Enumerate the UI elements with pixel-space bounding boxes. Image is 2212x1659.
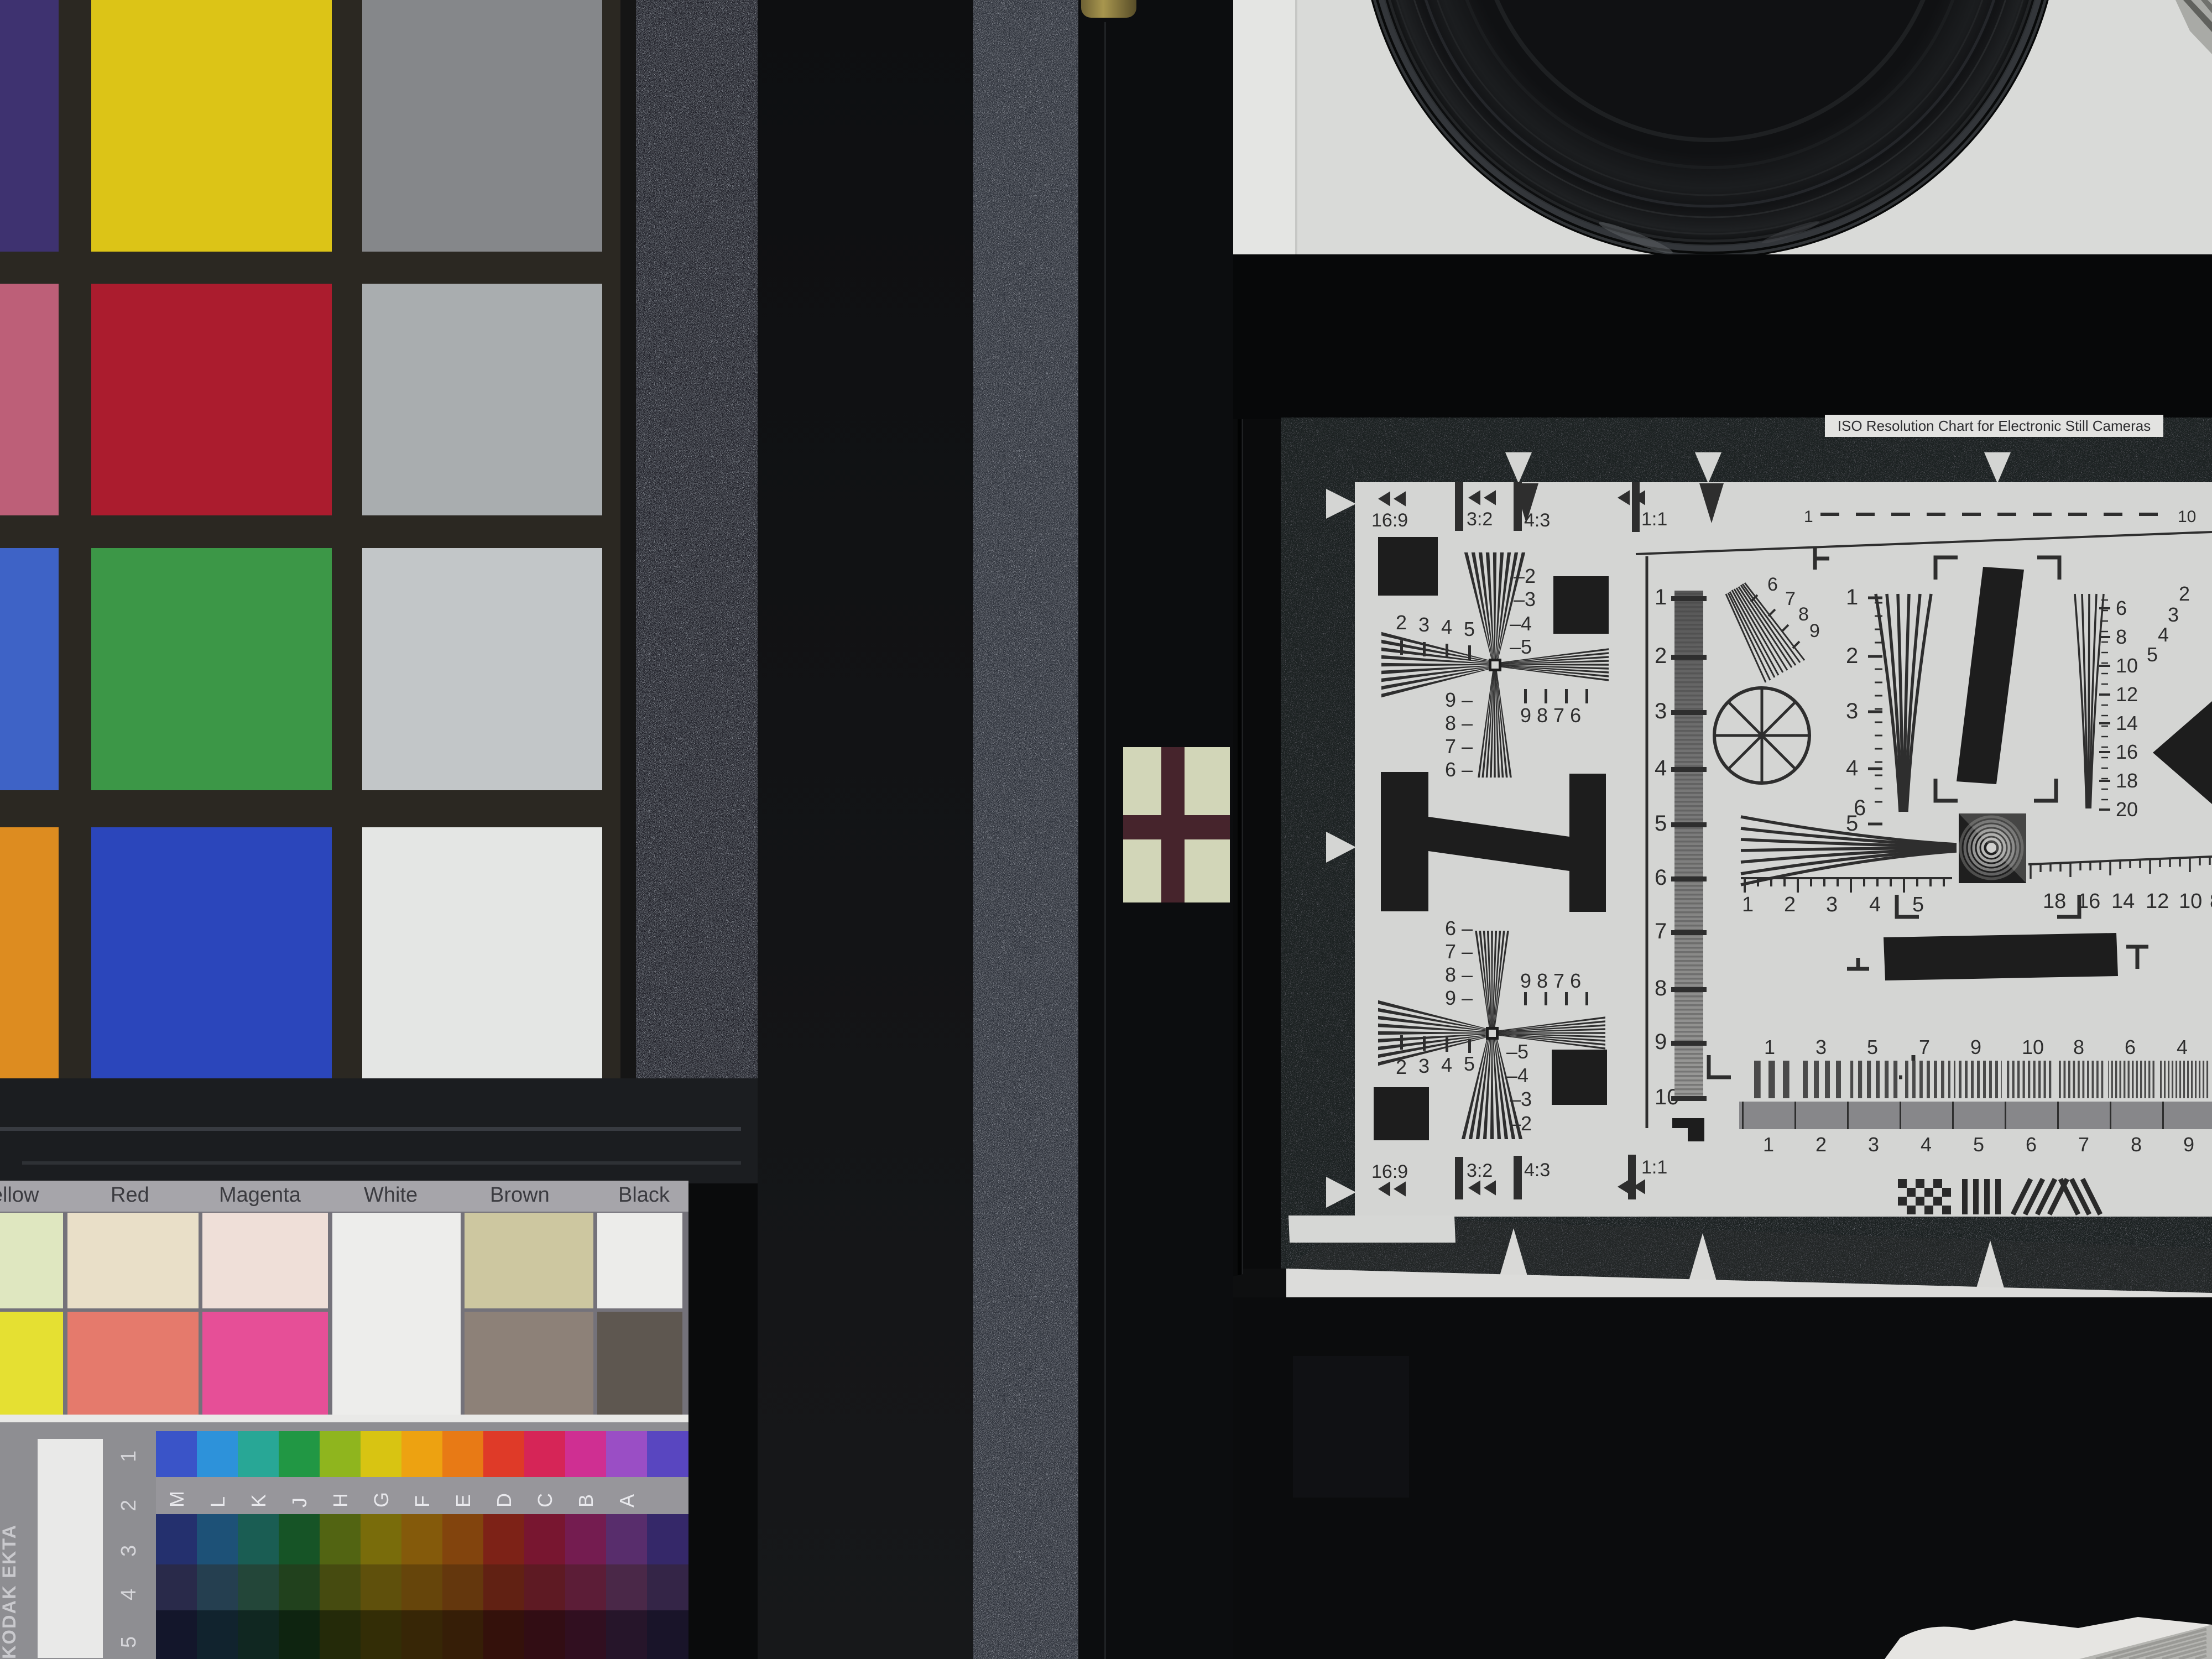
- svg-text:8: 8: [2116, 625, 2127, 648]
- svg-text:8: 8: [1655, 976, 1667, 1000]
- svg-text:1:1: 1:1: [1641, 509, 1667, 530]
- svg-text:6: 6: [1767, 574, 1778, 595]
- svg-text:2: 2: [1815, 1133, 1827, 1156]
- svg-text:5: 5: [1655, 811, 1667, 836]
- svg-text:1: 1: [1764, 1036, 1775, 1058]
- svg-text:ISO Resolution Chart for Elect: ISO Resolution Chart for Electronic Stil…: [1838, 418, 2151, 434]
- svg-text:1: 1: [1763, 1133, 1774, 1156]
- svg-text:8: 8: [1798, 604, 1809, 625]
- svg-text:6: 6: [2026, 1133, 2037, 1156]
- svg-text:2: 2: [2179, 582, 2190, 605]
- svg-text:18: 18: [2116, 769, 2138, 792]
- svg-text:1: 1: [1804, 508, 1813, 526]
- svg-text:3: 3: [1826, 893, 1838, 916]
- svg-text:7: 7: [1919, 1036, 1930, 1058]
- svg-text:7: 7: [1655, 919, 1667, 943]
- svg-text:12: 12: [2116, 683, 2138, 706]
- svg-text:9 –: 9 –: [1445, 987, 1473, 1009]
- svg-text:1:1: 1:1: [1641, 1157, 1667, 1178]
- svg-text:16:9: 16:9: [1371, 1161, 1408, 1182]
- svg-text:–5: –5: [1506, 1040, 1528, 1063]
- svg-text:8: 8: [2210, 890, 2212, 913]
- svg-text:10: 10: [2022, 1036, 2044, 1058]
- svg-text:7 –: 7 –: [1445, 940, 1473, 963]
- svg-text:4:3: 4:3: [1524, 1160, 1550, 1181]
- svg-text:–3: –3: [1510, 1088, 1532, 1110]
- svg-text:5: 5: [1867, 1036, 1878, 1058]
- svg-text:16: 16: [2116, 740, 2138, 763]
- svg-text:8 –: 8 –: [1445, 963, 1473, 986]
- svg-text:20: 20: [2116, 798, 2138, 821]
- svg-text:3: 3: [1815, 1036, 1827, 1058]
- svg-text:4: 4: [1921, 1133, 1932, 1156]
- svg-text:2: 2: [1784, 893, 1796, 916]
- svg-text:6: 6: [2116, 597, 2127, 619]
- svg-text:3: 3: [1655, 699, 1667, 723]
- svg-text:7: 7: [1785, 588, 1796, 609]
- svg-text:4: 4: [2177, 1036, 2188, 1058]
- svg-text:8 –: 8 –: [1445, 712, 1473, 734]
- svg-text:7: 7: [2078, 1133, 2089, 1156]
- svg-text:10: 10: [2179, 890, 2202, 913]
- svg-text:3:2: 3:2: [1467, 509, 1493, 530]
- svg-text:–2: –2: [1510, 1112, 1532, 1135]
- svg-text:4: 4: [2158, 623, 2169, 646]
- svg-text:–3: –3: [1514, 588, 1536, 611]
- svg-text:3: 3: [1868, 1133, 1879, 1156]
- svg-text:3: 3: [1418, 613, 1430, 636]
- svg-text:5: 5: [2147, 643, 2158, 666]
- svg-text:4: 4: [1441, 615, 1452, 638]
- svg-text:4: 4: [1655, 756, 1667, 780]
- svg-text:–5: –5: [1510, 635, 1532, 658]
- svg-text:6: 6: [1655, 865, 1667, 890]
- svg-text:–2: –2: [1514, 565, 1536, 587]
- svg-text:1: 1: [1742, 893, 1754, 916]
- svg-text:5: 5: [1912, 893, 1924, 916]
- svg-text:5: 5: [1464, 1052, 1475, 1075]
- svg-text:9: 9: [1970, 1036, 1981, 1058]
- svg-text:1: 1: [1846, 585, 1858, 609]
- svg-text:14: 14: [2116, 712, 2138, 734]
- svg-text:6: 6: [2125, 1036, 2136, 1058]
- svg-text:9: 9: [1655, 1030, 1667, 1054]
- svg-text:16:9: 16:9: [1371, 510, 1408, 531]
- svg-text:4: 4: [1869, 893, 1881, 916]
- svg-text:5: 5: [1973, 1133, 1984, 1156]
- svg-text:9: 9: [1809, 620, 1820, 641]
- svg-text:2: 2: [1396, 1056, 1407, 1078]
- svg-text:3: 3: [2168, 603, 2179, 626]
- svg-text:10: 10: [2178, 508, 2196, 526]
- svg-text:4: 4: [1441, 1053, 1452, 1076]
- svg-text:9: 9: [2183, 1133, 2194, 1156]
- svg-text:–4: –4: [1510, 612, 1532, 635]
- svg-text:2: 2: [1396, 611, 1407, 634]
- svg-text:8: 8: [2131, 1133, 2142, 1156]
- svg-text:4:3: 4:3: [1524, 510, 1550, 531]
- svg-text:1: 1: [1655, 585, 1667, 609]
- svg-text:3:2: 3:2: [1467, 1160, 1493, 1181]
- svg-text:8: 8: [2073, 1036, 2084, 1058]
- svg-text:18: 18: [2043, 890, 2066, 913]
- svg-text:2: 2: [1846, 644, 1858, 668]
- svg-text:4: 4: [1846, 756, 1858, 780]
- svg-text:2: 2: [1655, 644, 1667, 668]
- svg-text:3: 3: [1846, 699, 1858, 723]
- svg-text:9 –: 9 –: [1445, 688, 1473, 711]
- svg-text:7 –: 7 –: [1445, 735, 1473, 758]
- svg-text:12: 12: [2146, 890, 2169, 913]
- svg-text:6 –: 6 –: [1445, 917, 1473, 940]
- svg-text:–4: –4: [1506, 1064, 1528, 1087]
- svg-text:9 8 7 6: 9 8 7 6: [1520, 704, 1581, 727]
- svg-text:3: 3: [1418, 1055, 1430, 1077]
- svg-text:10: 10: [2116, 654, 2138, 677]
- svg-text:14: 14: [2111, 890, 2135, 913]
- svg-text:5: 5: [1464, 618, 1475, 640]
- svg-text:6 –: 6 –: [1445, 758, 1473, 781]
- svg-text:16: 16: [2077, 890, 2100, 913]
- svg-text:6: 6: [1854, 796, 1866, 820]
- svg-text:9 8 7 6: 9 8 7 6: [1520, 969, 1581, 992]
